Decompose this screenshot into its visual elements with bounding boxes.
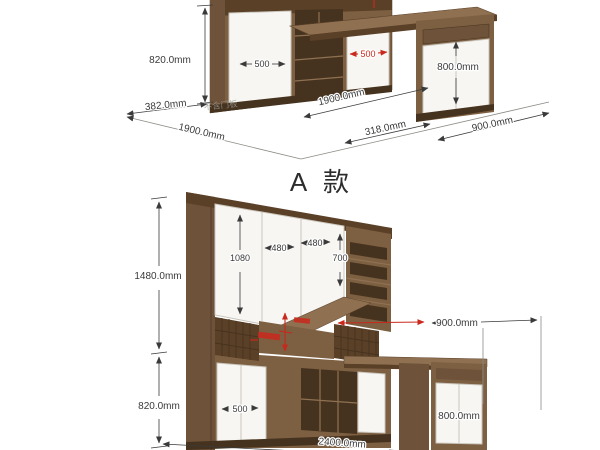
dim-label-480-left: 480 (271, 243, 286, 253)
drawing-a-bottom: 1480.0mm 820.0mm 1080 480 480 700 (134, 192, 541, 450)
dim-label-upper-door-height: 1080 (230, 253, 250, 263)
unit-left-panel (186, 192, 215, 450)
dim-desk-width-900: 900.0mm (438, 113, 549, 140)
dim-label-desk-width: 900.0mm (471, 115, 514, 134)
dim-label-480-right: 480 (307, 238, 322, 248)
desk-side-cabinet-band (436, 368, 482, 381)
dim-lower-height-820: 820.0mm (138, 357, 180, 448)
dim-label-door-width-red: 500 (360, 49, 375, 59)
dim-label-door-width: 500 (254, 59, 269, 69)
drawing-a-top: 820.0mm 500 500 800.0mm 382.0mm 不含门板 190… (127, 0, 549, 159)
dim-label-desk-depth: 318.0mm (364, 119, 407, 138)
sheet-title: A 款 (290, 167, 354, 197)
lower-door-right (358, 372, 385, 433)
dim-label-lower-height: 820.0mm (138, 401, 180, 412)
dim-label-desk-cabinet-height: 800.0mm (438, 411, 480, 422)
dimension-drawing-svg: 820.0mm 500 500 800.0mm 382.0mm 不含门板 190… (0, 0, 600, 450)
dim-label-side-shelf-height: 700 (332, 253, 347, 263)
dim-label-right-cabinet-height: 800.0mm (437, 62, 479, 73)
desk-support-panel (399, 363, 429, 450)
dim-width-front-1900: 1900.0mm (127, 117, 301, 159)
dim-label-depth: 382.0mm (144, 98, 187, 113)
dim-total-height-1480: 1480.0mm (134, 197, 181, 354)
dim-label-total-height: 1480.0mm (134, 271, 181, 282)
dim-height-820: 820.0mm (149, 5, 213, 104)
cabinet-left-edge (210, 0, 225, 113)
dim-label-desk-width: 900.0mm (436, 318, 478, 329)
dim-label-lower-door-width: 500 (232, 404, 247, 414)
furniture-dimension-sheet: 820.0mm 500 500 800.0mm 382.0mm 不含门板 190… (0, 0, 600, 450)
dim-label-height: 820.0mm (149, 55, 191, 66)
dim-label-width-front: 1900.0mm (177, 122, 226, 143)
